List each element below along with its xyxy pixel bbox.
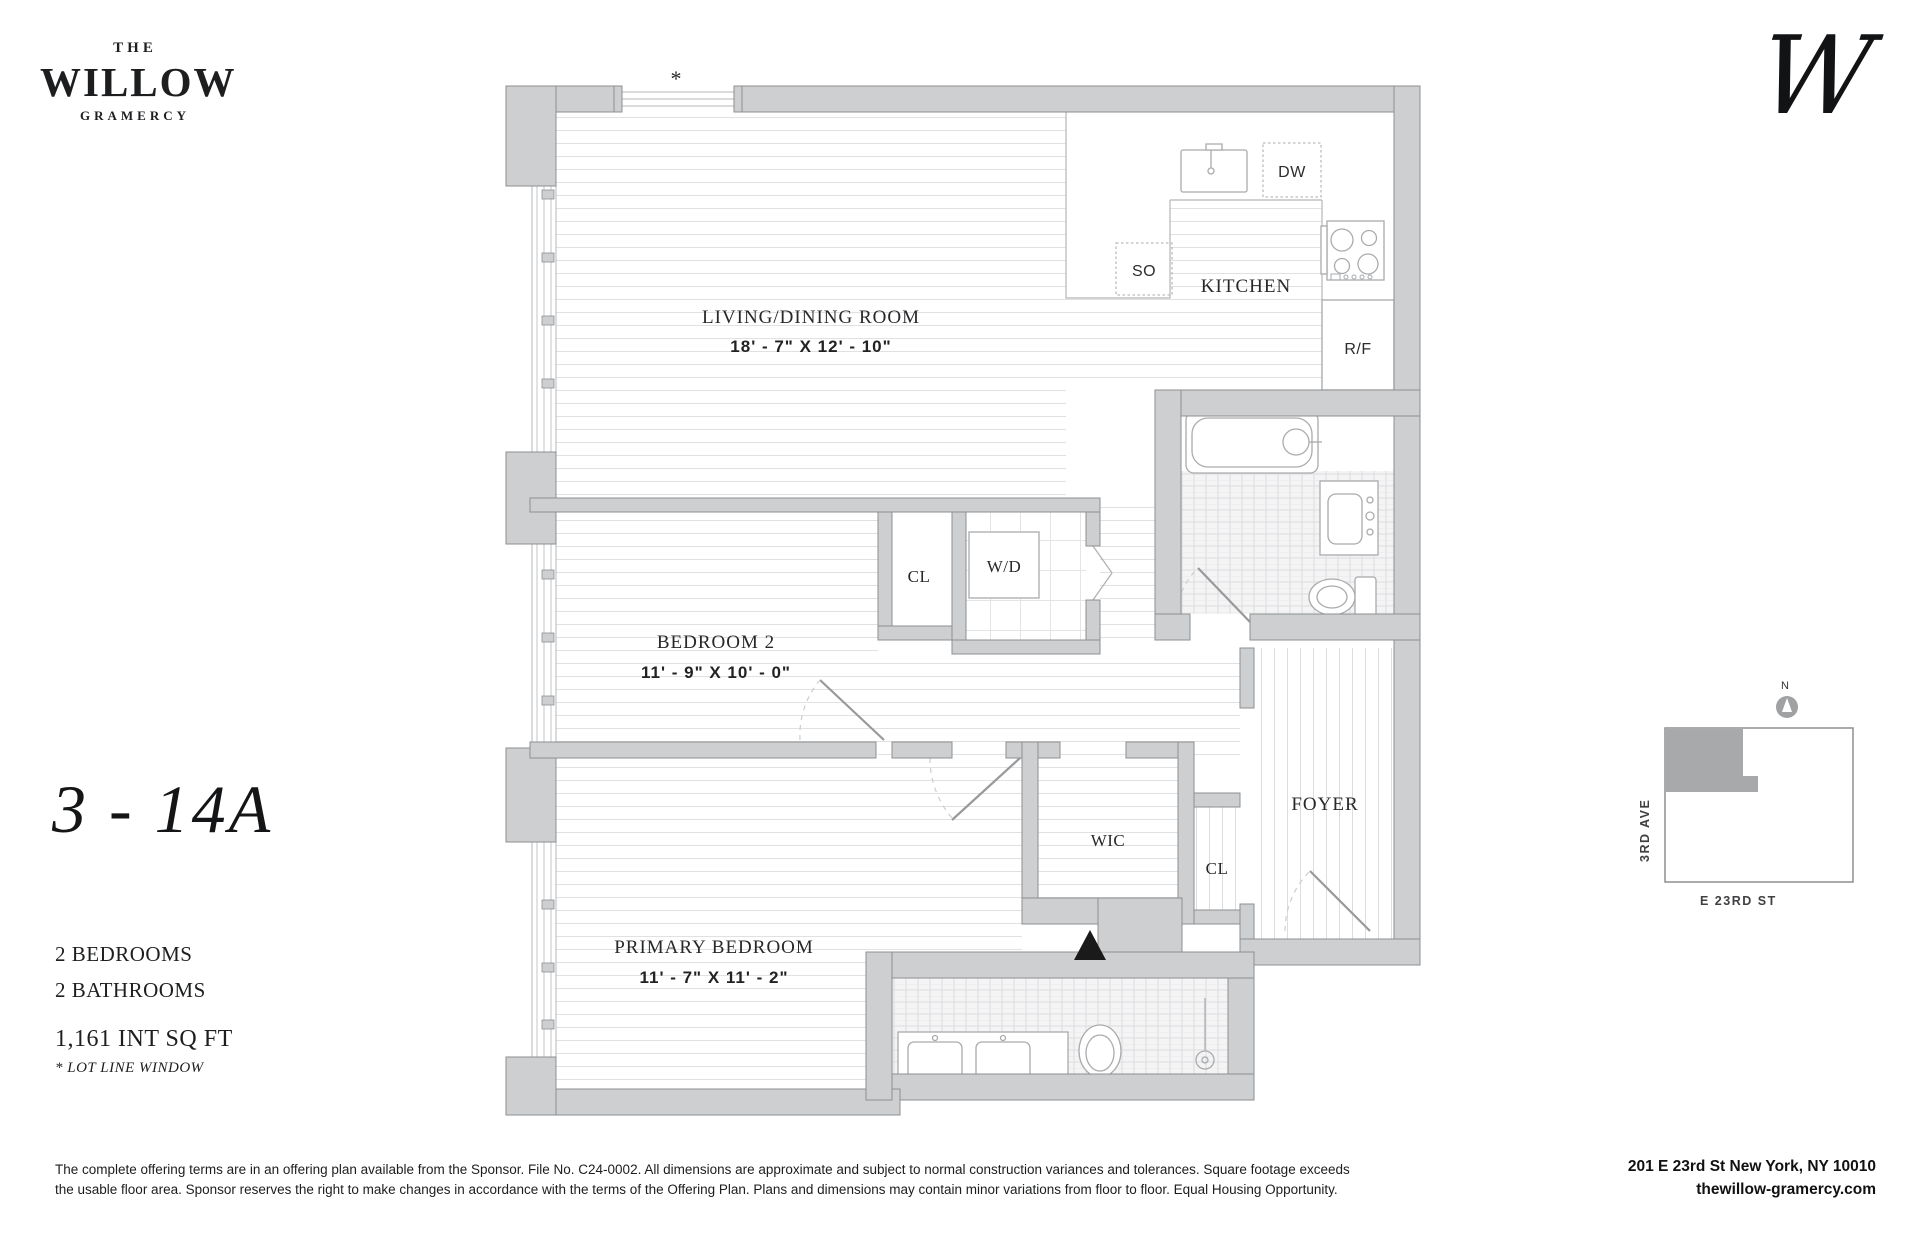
lot-line-asterisk: *: [671, 66, 682, 91]
label-kitchen: KITCHEN: [1201, 276, 1291, 297]
kitchen-sink-icon: [1181, 144, 1247, 192]
label-primary: PRIMARY BEDROOM: [614, 937, 814, 958]
label-wd: W/D: [987, 557, 1022, 576]
floor-plan-drawing: LIVING/DINING ROOM 18' - 7" X 12' - 10" …: [0, 0, 1920, 1242]
label-cl-bedroom: CL: [908, 567, 931, 586]
footer-website: thewillow-gramercy.com: [1628, 1178, 1876, 1201]
disclaimer-line-1: The complete offering terms are in an of…: [55, 1160, 1475, 1180]
map-3rd-ave-label: 3RD AVE: [1638, 799, 1652, 862]
label-wic: WIC: [1091, 831, 1126, 850]
site-map: [1665, 696, 1853, 882]
bath2-vanity-icon: [1320, 481, 1378, 555]
label-foyer: FOYER: [1291, 794, 1358, 815]
label-primary-dims: 11' - 7" X 11' - 2": [639, 968, 788, 987]
label-bedroom2: BEDROOM 2: [657, 632, 775, 653]
floor-plan-page: { "brand": { "the": "THE", "name": "WILL…: [0, 0, 1920, 1242]
legal-disclaimer: The complete offering terms are in an of…: [55, 1160, 1475, 1200]
label-living: LIVING/DINING ROOM: [702, 307, 920, 328]
label-dw: DW: [1278, 164, 1306, 181]
window-wall: [532, 112, 556, 1057]
map-north-label: N: [1781, 680, 1789, 692]
label-cl-foyer: CL: [1206, 859, 1229, 878]
label-rf: R/F: [1344, 341, 1371, 358]
label-bedroom2-dims: 11' - 9" X 10' - 0": [641, 663, 791, 682]
footer-address: 201 E 23rd St New York, NY 10010: [1628, 1155, 1876, 1178]
disclaimer-line-2: the usable floor area. Sponsor reserves …: [55, 1180, 1475, 1200]
label-living-dims: 18' - 7" X 12' - 10": [730, 337, 891, 356]
map-e23rd-label: E 23RD ST: [1700, 894, 1777, 908]
bath2-toilet-icon: [1309, 577, 1376, 617]
footer-contact: 201 E 23rd St New York, NY 10010 thewill…: [1628, 1155, 1876, 1201]
stove-icon: [1321, 221, 1384, 280]
bathtub-icon: [1186, 412, 1322, 473]
label-so: SO: [1132, 263, 1156, 280]
